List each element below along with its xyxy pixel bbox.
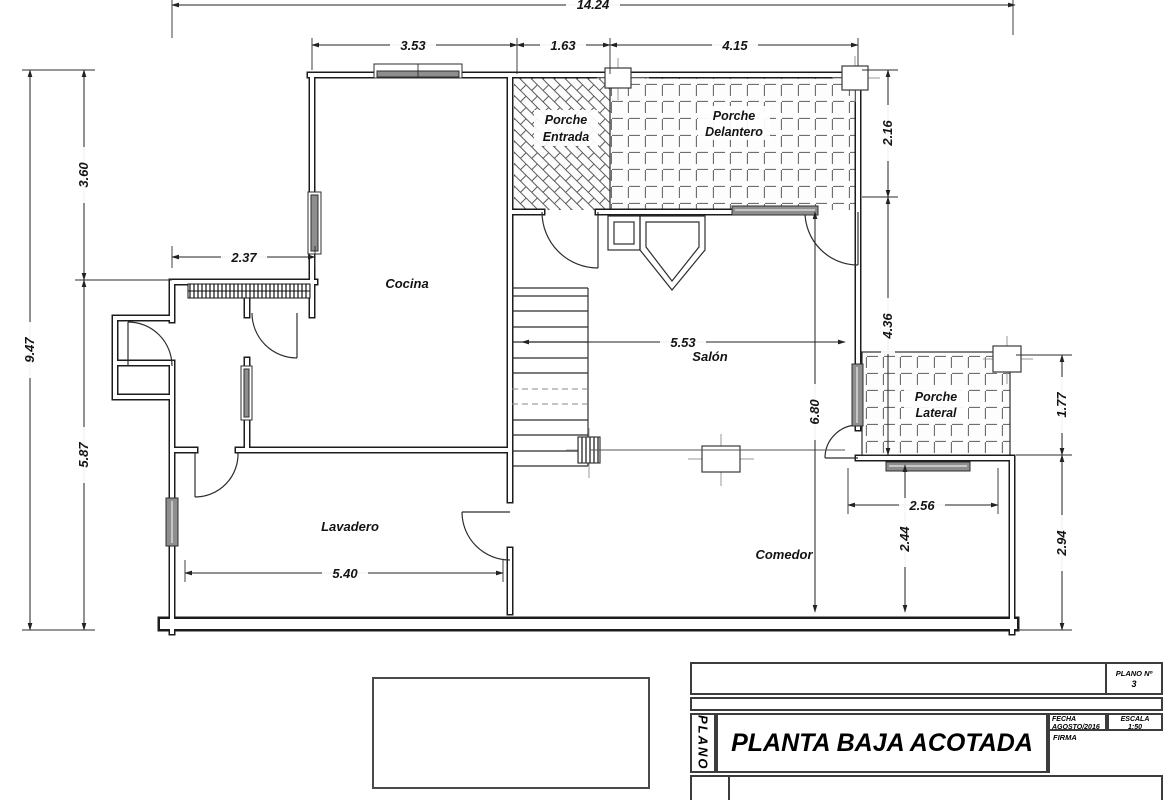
escala-cell: ESCALA 1:50 (1107, 713, 1163, 731)
salon-top-window (732, 206, 818, 215)
dim-lavadero-width: 5.40 (332, 566, 358, 581)
staircase (512, 288, 588, 466)
lavadero-left-door (195, 452, 238, 497)
dim-top-3: 4.15 (721, 38, 748, 53)
room-label-porche-entrada-2: Entrada (543, 130, 590, 144)
fireplace-bay (608, 216, 705, 290)
entry-door (542, 212, 598, 268)
title-block-bottom-band (690, 775, 1163, 800)
closet-door (128, 322, 172, 366)
comedor-porch-door (825, 425, 858, 458)
salon-porch-door (805, 212, 858, 265)
dim-salon-height: 6.80 (807, 399, 822, 425)
room-label-lavadero: Lavadero (321, 519, 379, 534)
hall-partition-window (241, 366, 252, 420)
room-label-porche-delantero-1: Porche (713, 109, 755, 123)
dim-total-width: 14.24 (577, 0, 610, 12)
dim-left-1: 3.60 (76, 162, 91, 188)
dim-left-2: 5.87 (76, 442, 91, 468)
dim-extension-height: 2.44 (897, 526, 912, 553)
dim-right-1: 2.16 (880, 120, 895, 147)
dim-right-2: 4.36 (880, 313, 895, 340)
plano-vertical-label: PLANO (696, 715, 711, 771)
plano-number-label: PLANO Nº (1116, 669, 1153, 678)
cocina-top-window (374, 64, 462, 78)
extension-top-window (886, 462, 970, 471)
porche-delantero-floor (610, 76, 858, 210)
radiator-strip (188, 284, 310, 298)
room-label-porche-delantero-2: Delantero (705, 125, 763, 139)
title-block: PLANO Nº 3 PLANO PLANTA BAJA ACOTADA FEC… (690, 662, 1165, 800)
lavadero-right-door (462, 512, 510, 560)
plano-vertical-cell: PLANO (690, 713, 716, 773)
floor-plan-drawing: 14.24 3.53 1.63 4.15 2.37 5.53 5.40 2.56… (0, 0, 1165, 800)
dim-left-total: 9.47 (22, 337, 37, 363)
left-upper-window (308, 192, 321, 254)
drawing-title: PLANTA BAJA ACOTADA (731, 729, 1033, 758)
plano-number-value: 3 (1131, 679, 1136, 689)
room-label-salon: Salón (692, 349, 727, 364)
room-label-comedor: Comedor (755, 547, 813, 562)
drawing-title-cell: PLANTA BAJA ACOTADA (716, 713, 1048, 773)
plano-number-cell: PLANO Nº 3 (1105, 662, 1163, 695)
fecha-cell: FECHA AGOSTO/2016 (1048, 713, 1107, 731)
dim-right-3: 2.94 (1054, 530, 1069, 557)
room-label-porche-lateral-2: Lateral (916, 406, 958, 420)
fecha-label: FECHA (1052, 716, 1103, 724)
title-block-top-band (690, 662, 1163, 695)
firma-label: FIRMA (1053, 733, 1077, 742)
legend-empty-box (372, 677, 650, 789)
room-label-cocina: Cocina (385, 276, 428, 291)
left-lower-window (166, 498, 178, 546)
pillar (688, 434, 754, 486)
title-block-thin-band (690, 697, 1163, 711)
dim-top-2: 1.63 (550, 38, 576, 53)
escala-label: ESCALA (1111, 716, 1159, 724)
dim-hall-width: 2.37 (230, 250, 257, 265)
dim-salon-width: 5.53 (670, 335, 696, 350)
room-label-porche-entrada-1: Porche (545, 113, 587, 127)
firma-cell: FIRMA (1048, 731, 1163, 773)
title-block-bottom-small-cell (690, 775, 730, 800)
dim-extension-width: 2.56 (908, 498, 935, 513)
room-label-porche-lateral-1: Porche (915, 390, 957, 404)
dim-porche-lateral-height: 1.77 (1054, 392, 1069, 418)
hall-door (252, 313, 297, 358)
salon-lateral-window (852, 364, 863, 426)
dim-top-1: 3.53 (400, 38, 426, 53)
